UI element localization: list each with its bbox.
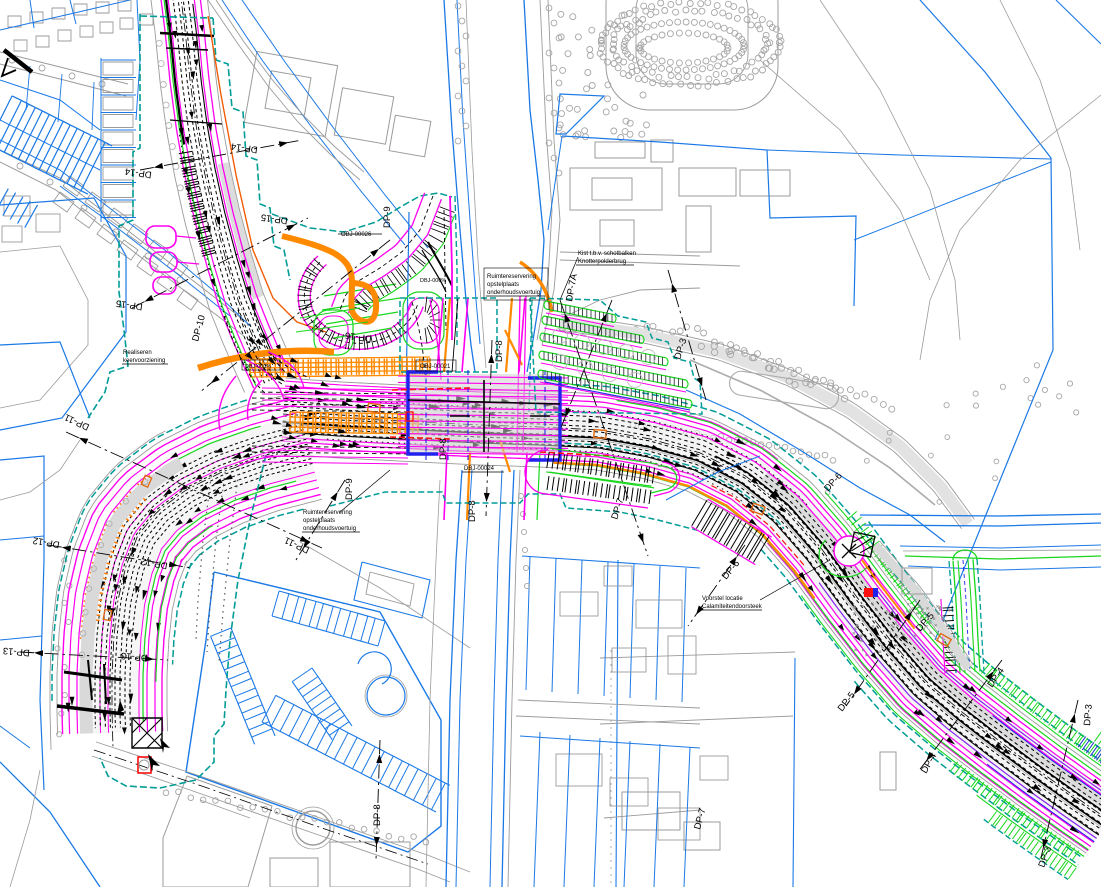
svg-text:DBJ-00024: DBJ-00024	[464, 466, 495, 472]
svg-text:Calamiteitendoorsteek: Calamiteitendoorsteek	[702, 604, 763, 610]
svg-text:keervoorziening: keervoorziening	[123, 358, 165, 364]
svg-text:Knotterpolderbrug: Knotterpolderbrug	[578, 259, 626, 265]
svg-text:Ruimtereservering: Ruimtereservering	[487, 274, 536, 280]
svg-text:DP-9: DP-9	[382, 206, 393, 228]
svg-text:DP-8: DP-8	[494, 340, 505, 362]
svg-text:DP-8: DP-8	[467, 500, 478, 522]
svg-text:Ruimtereservering: Ruimtereservering	[303, 510, 352, 516]
svg-text:DP-13: DP-13	[120, 650, 148, 663]
svg-text:opstelplaats: opstelplaats	[487, 282, 519, 288]
svg-text:DP-3: DP-3	[1082, 704, 1095, 727]
svg-text:Realiseren: Realiseren	[123, 350, 152, 356]
svg-text:OBJ-00026: OBJ-00026	[341, 232, 372, 238]
svg-text:Kist t.b.v. schotbalken: Kist t.b.v. schotbalken	[578, 251, 636, 257]
svg-text:opstelplaats: opstelplaats	[303, 518, 335, 524]
svg-text:DBJ-000%: DBJ-000%	[245, 364, 271, 370]
svg-text:Voorstel locatie: Voorstel locatie	[702, 596, 743, 602]
svg-text:DP-13: DP-13	[2, 645, 30, 658]
svg-text:DP-8: DP-8	[438, 438, 449, 460]
svg-text:DP-9: DP-9	[344, 478, 355, 500]
svg-text:OBJ-00021: OBJ-00021	[420, 364, 451, 370]
svg-text:onderhoudsvoertuig: onderhoudsvoertuig	[303, 526, 356, 532]
svg-text:DBJ-000%: DBJ-000%	[420, 278, 446, 284]
svg-text:DP-8: DP-8	[372, 804, 383, 826]
svg-text:onderhoudsvoertuig: onderhoudsvoertuig	[487, 290, 540, 296]
